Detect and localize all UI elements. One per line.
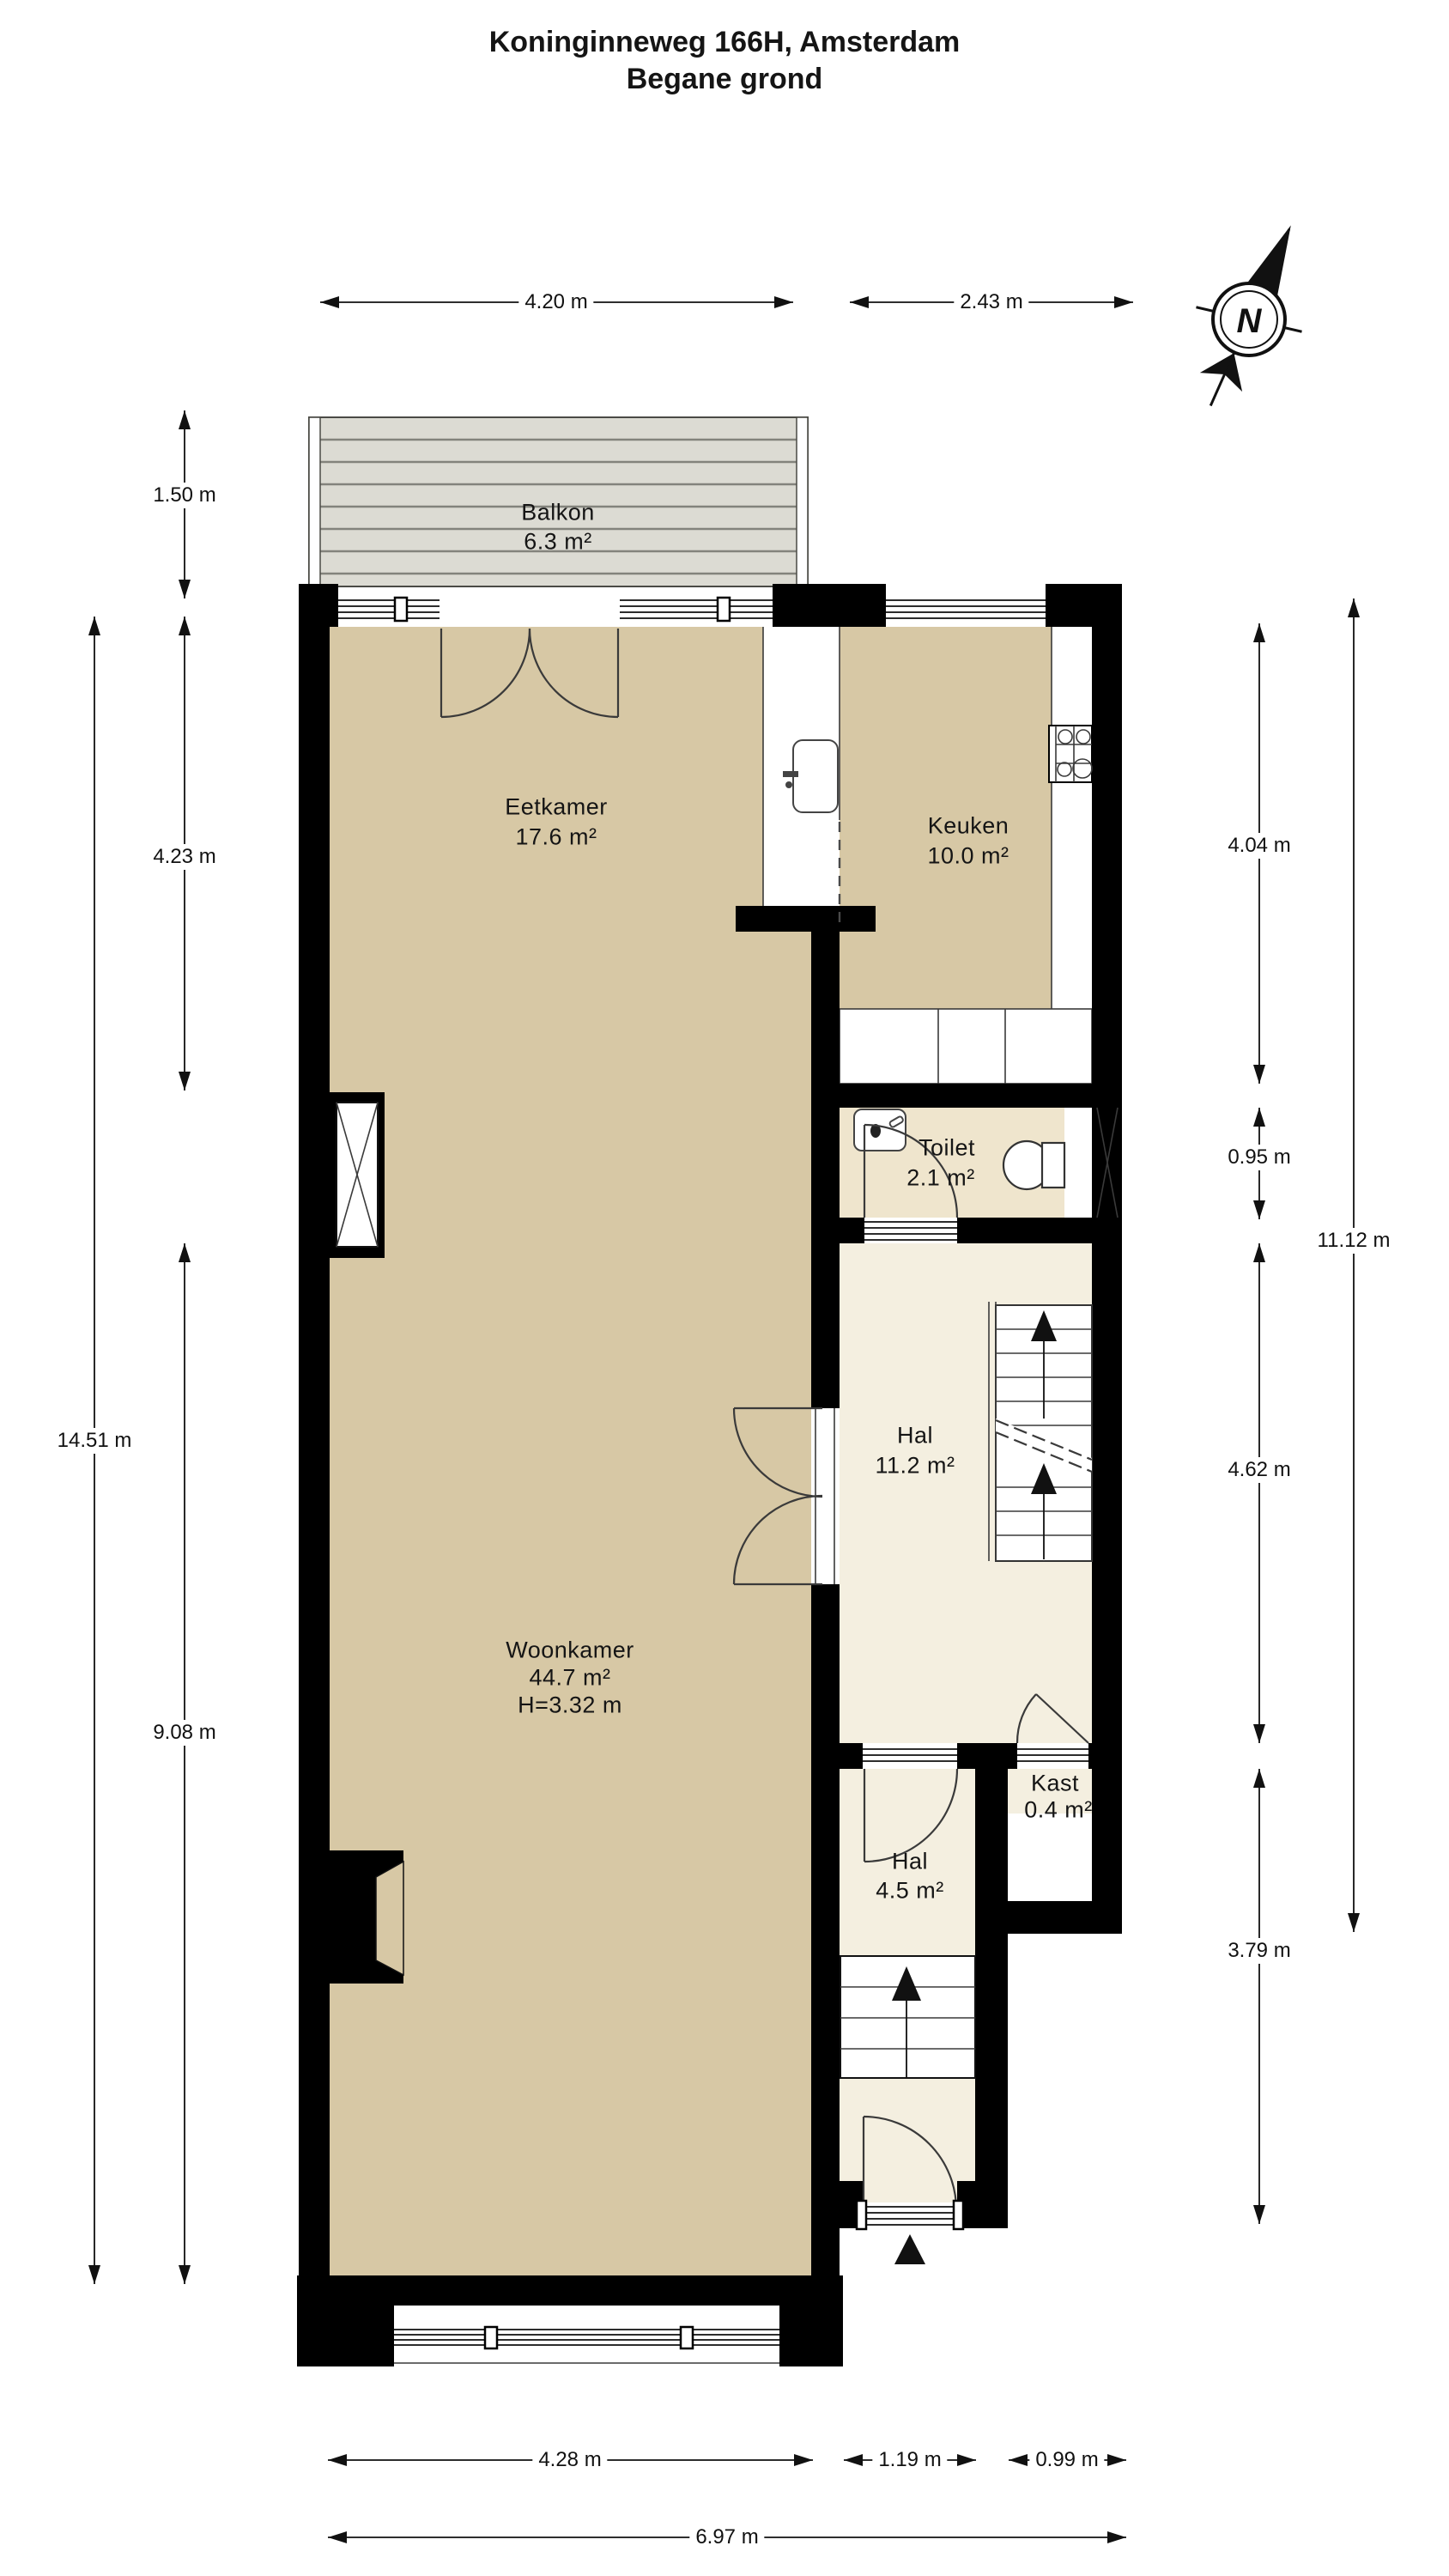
room-area-woonkamer: 44.7 m² — [529, 1665, 610, 1692]
room-area-hal-entree: 4.5 m² — [876, 1878, 944, 1905]
dim-right-379: 3.79 m — [1222, 1938, 1296, 1964]
flue-shaft-icon — [336, 1103, 378, 1247]
room-area-eetkamer: 17.6 m² — [515, 824, 597, 851]
floorplan: N — [0, 0, 1449, 2576]
room-area-hal: 11.2 m² — [875, 1453, 955, 1479]
dim-left-150: 1.50 m — [147, 483, 221, 508]
windows-top — [338, 598, 1046, 621]
dim-right-095: 0.95 m — [1222, 1145, 1296, 1170]
room-label-woonkamer: Woonkamer — [506, 1637, 634, 1664]
room-area-keuken: 10.0 m² — [927, 843, 1009, 870]
dim-right-404: 4.04 m — [1222, 833, 1296, 859]
compass-north-label: N — [1237, 302, 1263, 340]
staircase-main — [989, 1302, 1092, 1561]
toilet-tank-icon — [1042, 1143, 1064, 1188]
room-label-kast: Kast — [1031, 1771, 1079, 1797]
room-label-keuken: Keuken — [928, 813, 1009, 840]
room-label-hal-entree: Hal — [892, 1849, 928, 1875]
dim-left-908: 9.08 m — [147, 1720, 221, 1746]
page-title: Koninginneweg 166H, Amsterdam Begane gro… — [0, 24, 1449, 98]
floorplan-drawing: N — [0, 0, 1449, 2576]
entrance-arrow-icon — [894, 2234, 925, 2264]
room-label-eetkamer: Eetkamer — [505, 794, 608, 821]
room-area-balkon: 6.3 m² — [524, 529, 592, 556]
dim-bottom-697: 6.97 m — [689, 2524, 764, 2550]
room-label-toilet: Toilet — [919, 1135, 975, 1162]
dim-right-1112: 11.12 m — [1312, 1228, 1397, 1254]
compass-north-icon: N — [1162, 204, 1340, 428]
room-label-hal: Hal — [897, 1423, 933, 1449]
dim-bottom-428: 4.28 m — [532, 2447, 607, 2473]
niche-recess — [376, 1862, 403, 1975]
title-address: Koninginneweg 166H, Amsterdam — [0, 24, 1449, 61]
title-floor: Begane grond — [0, 61, 1449, 98]
woonkamer-eetkamer-floor — [330, 627, 811, 2306]
dim-right-462: 4.62 m — [1222, 1457, 1296, 1483]
dim-bottom-099: 0.99 m — [1029, 2447, 1104, 2473]
room-area-kast: 0.4 m² — [1024, 1797, 1093, 1824]
room-area-toilet: 2.1 m² — [906, 1165, 975, 1192]
dim-top-420: 4.20 m — [518, 289, 593, 315]
counter-strip-right — [1052, 627, 1092, 1009]
entry-steps — [840, 1956, 975, 2078]
kitchen-counters — [840, 1009, 1092, 1084]
kast-shelf — [1008, 1814, 1092, 1901]
window-bottom — [394, 2306, 779, 2366]
dim-bottom-119: 1.19 m — [872, 2447, 947, 2473]
room-label-balkon: Balkon — [521, 500, 595, 526]
dim-left-423: 4.23 m — [147, 844, 221, 870]
stove-icon — [1049, 726, 1092, 782]
dim-left-1451: 14.51 m — [52, 1428, 138, 1454]
dim-top-243: 2.43 m — [954, 289, 1028, 315]
room-height-woonkamer: H=3.32 m — [518, 1692, 622, 1719]
